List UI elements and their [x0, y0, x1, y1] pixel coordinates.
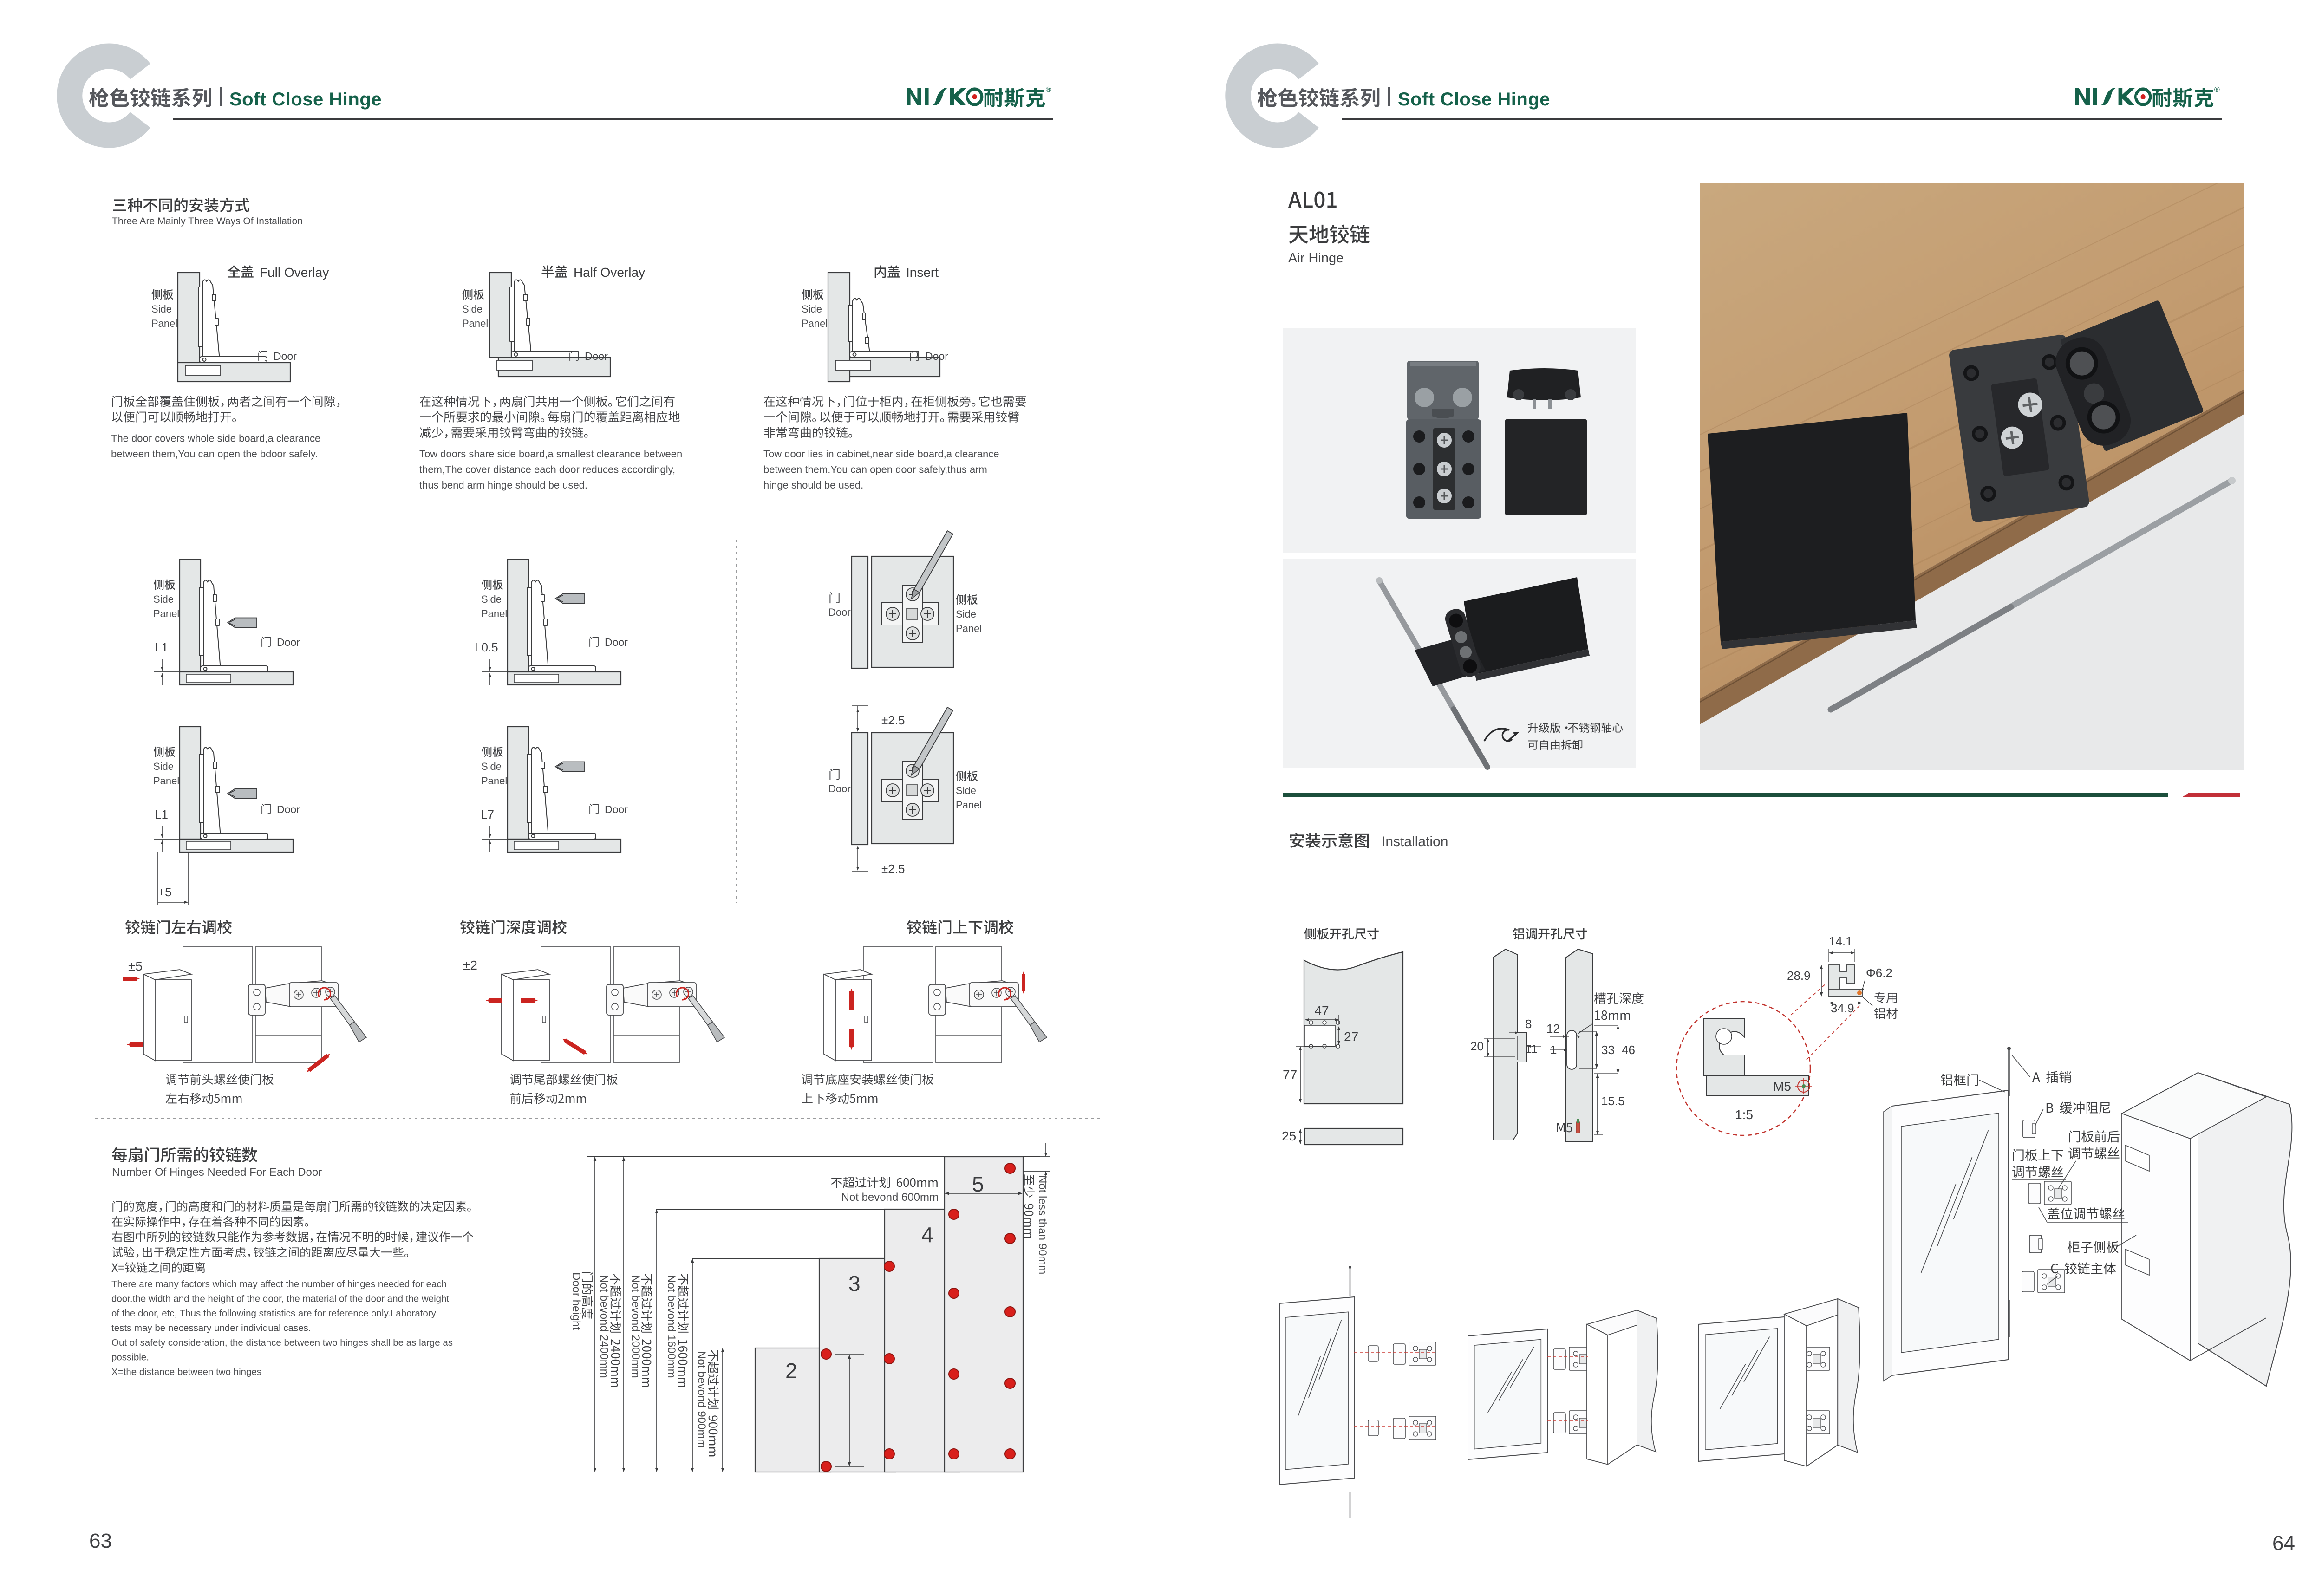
- svg-text:64: 64: [2272, 1532, 2295, 1555]
- svg-text:5: 5: [972, 1172, 984, 1196]
- svg-text:77: 77: [1283, 1068, 1297, 1082]
- svg-text:L1: L1: [155, 808, 168, 821]
- svg-text:L1: L1: [155, 640, 168, 654]
- svg-text:8: 8: [1525, 1017, 1532, 1031]
- svg-text:Not less than 90mm: Not less than 90mm: [1036, 1175, 1049, 1274]
- svg-text:47: 47: [1314, 1003, 1329, 1018]
- svg-text:possible.: possible.: [111, 1352, 149, 1363]
- svg-text:Door: Door: [828, 783, 851, 795]
- svg-text:door.the width and the height: door.the width and the height of the doo…: [111, 1294, 449, 1304]
- svg-text:15.5: 15.5: [1601, 1094, 1625, 1108]
- svg-text:33: 33: [1601, 1043, 1615, 1057]
- svg-text:®: ®: [1046, 86, 1051, 94]
- svg-text:Insert: Insert: [906, 265, 939, 280]
- svg-text:Side: Side: [802, 303, 822, 315]
- svg-text:20: 20: [1470, 1039, 1484, 1053]
- svg-text:Soft Close Hinge: Soft Close Hinge: [1398, 89, 1550, 110]
- svg-text:Panel: Panel: [956, 799, 982, 811]
- svg-text:63: 63: [89, 1530, 112, 1552]
- svg-text:Air Hinge: Air Hinge: [1288, 251, 1344, 266]
- svg-text:The door covers whole side boa: The door covers whole side board,a clear…: [111, 433, 320, 444]
- svg-text:+5: +5: [158, 885, 172, 899]
- svg-text:hinge should be used.: hinge should be used.: [763, 479, 863, 491]
- svg-text:Three Are Mainly Three Ways Of: Three Are Mainly Three Ways Of Installat…: [112, 216, 303, 227]
- svg-text:between them.You can open door: between them.You can open door safely,th…: [763, 464, 987, 476]
- svg-text:Side: Side: [956, 785, 976, 796]
- svg-text:There are many factors which m: There are many factors which may affect …: [111, 1279, 447, 1290]
- svg-text:1:5: 1:5: [1735, 1107, 1753, 1122]
- svg-text:±5: ±5: [128, 959, 143, 973]
- svg-text:of the door, etc, Thus the fol: of the door, etc, Thus the following sta…: [111, 1308, 437, 1319]
- svg-text:±2: ±2: [463, 958, 477, 972]
- svg-text:Door: Door: [585, 350, 608, 362]
- svg-text:12: 12: [1546, 1022, 1560, 1036]
- svg-text:Panel: Panel: [462, 318, 488, 329]
- svg-text:Not bevond 1600mm: Not bevond 1600mm: [665, 1275, 678, 1378]
- svg-text:thus bend arm hinge should be: thus bend arm hinge should be used.: [419, 479, 587, 491]
- svg-text:Door: Door: [605, 803, 628, 815]
- svg-text:Out of safety consideration, t: Out of safety consideration, the distanc…: [111, 1337, 453, 1348]
- svg-text:Door: Door: [605, 636, 628, 648]
- svg-text:Full Overlay: Full Overlay: [260, 265, 329, 280]
- svg-text:Number Of Hinges Needed For Ea: Number Of Hinges Needed For Each Door: [112, 1166, 322, 1179]
- svg-text:Side: Side: [481, 761, 502, 772]
- svg-text:Installation: Installation: [1382, 834, 1448, 849]
- svg-text:Not bevond 600mm: Not bevond 600mm: [841, 1191, 939, 1204]
- svg-text:Side: Side: [151, 303, 172, 315]
- svg-text:Panel: Panel: [481, 608, 507, 619]
- svg-text:Side: Side: [462, 303, 483, 315]
- svg-text:X=the distance between two hin: X=the distance between two hinges: [111, 1367, 261, 1377]
- svg-text:Side: Side: [153, 761, 174, 772]
- svg-text:Panel: Panel: [481, 775, 507, 787]
- svg-text:Panel: Panel: [956, 623, 982, 634]
- svg-text:Φ6.2: Φ6.2: [1866, 966, 1892, 980]
- svg-text:them,The cover distance each d: them,The cover distance each door reduce…: [419, 464, 675, 476]
- svg-text:28.9: 28.9: [1787, 969, 1811, 983]
- svg-text:Side: Side: [481, 593, 502, 605]
- svg-text:M5: M5: [1773, 1079, 1791, 1094]
- svg-text:27: 27: [1344, 1029, 1358, 1044]
- svg-text:46: 46: [1622, 1043, 1635, 1057]
- svg-text:®: ®: [2214, 86, 2220, 94]
- svg-text:Door: Door: [925, 350, 948, 362]
- svg-text:±2.5: ±2.5: [881, 713, 905, 727]
- svg-text:Half Overlay: Half Overlay: [574, 265, 645, 280]
- svg-text:between them,You can open the: between them,You can open the bdoor safe…: [111, 448, 318, 460]
- svg-text:Not bevond 2000mm: Not bevond 2000mm: [629, 1275, 642, 1378]
- svg-text:Soft Close Hinge: Soft Close Hinge: [229, 89, 382, 110]
- svg-text:3: 3: [848, 1271, 861, 1296]
- svg-text:Panel: Panel: [151, 318, 177, 329]
- svg-text:Door: Door: [277, 803, 300, 815]
- svg-text:25: 25: [1282, 1129, 1296, 1143]
- svg-text:Door height: Door height: [570, 1272, 582, 1330]
- svg-text:Side: Side: [153, 593, 174, 605]
- svg-text:11: 11: [1525, 1042, 1538, 1056]
- svg-text:L0.5: L0.5: [475, 640, 498, 654]
- svg-text:Not bevond 900mm: Not bevond 900mm: [695, 1351, 708, 1448]
- svg-text:Door: Door: [828, 606, 851, 618]
- svg-text:tests may be necessary under i: tests may be necessary under individual …: [111, 1323, 311, 1334]
- svg-text:Panel: Panel: [153, 775, 179, 787]
- svg-text:±2.5: ±2.5: [881, 862, 905, 876]
- svg-text:14.1: 14.1: [1829, 934, 1852, 948]
- svg-text:Tow door lies in cabinet,near: Tow door lies in cabinet,near side board…: [763, 448, 999, 460]
- svg-text:Panel: Panel: [153, 608, 179, 619]
- svg-text:Tow doors share side board,a s: Tow doors share side board,a smallest cl…: [419, 448, 682, 460]
- svg-text:Door: Door: [274, 350, 297, 362]
- svg-text:L7: L7: [481, 808, 494, 821]
- svg-text:4: 4: [921, 1223, 933, 1247]
- svg-text:Not bevond 2400mm: Not bevond 2400mm: [598, 1275, 610, 1378]
- svg-text:Door: Door: [277, 636, 300, 648]
- svg-text:2: 2: [785, 1359, 797, 1383]
- svg-text:Side: Side: [956, 608, 976, 620]
- svg-text:Panel: Panel: [802, 318, 828, 329]
